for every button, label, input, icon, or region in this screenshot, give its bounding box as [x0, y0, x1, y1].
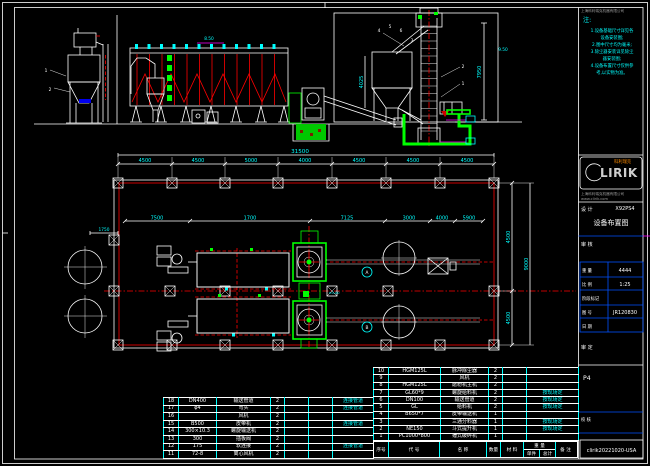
bom-cell [503, 389, 527, 396]
bom-cell: 2 [489, 375, 503, 382]
drawno-label: 图 号 [582, 310, 592, 316]
notes-block: 1.设备基础尺寸详见各 设备安装图; 2.图中尺寸均为毫米; 3.除尘器安装详见… [591, 27, 634, 76]
hopper-height-dim: 4025 [359, 76, 365, 89]
bom-header-weight: 重 量 [524, 442, 555, 450]
bom-cell [527, 411, 579, 418]
bom-cell: GL [389, 404, 441, 411]
bom-row: 17φ4弯头2连接管道 [164, 405, 374, 413]
bom-cell: 螺旋输送机 [217, 428, 271, 436]
inner-dim-5: 4000 [436, 216, 449, 222]
callout-3: 3 [411, 38, 414, 44]
bom-cell [527, 433, 579, 440]
bay-dim-7: 4500 [461, 158, 474, 164]
bom-header-name: 名 称 [440, 442, 487, 457]
logo-brand-cn: 科利瑞克 [614, 158, 632, 165]
bom-cell [333, 451, 374, 459]
bom-table-left: 18DN400输送管道2连接管道17φ4弯头2连接管道16风机215B500皮带… [163, 397, 374, 459]
bom-cell: 2 [271, 398, 285, 406]
logo-website: www.clirik.com [581, 197, 608, 201]
feed-hopper [372, 26, 428, 124]
bom-cell: 4 [374, 411, 389, 418]
bom-cell: 给料机 [441, 404, 489, 411]
bom-cell: 按现场定 [527, 404, 579, 411]
bom-cell [333, 435, 374, 443]
right-dims: 4500 4500 9000 [498, 181, 534, 347]
bom-cell: 锤式破碎机 [441, 433, 489, 440]
bom-cell [503, 397, 527, 404]
bom-cell: 2 [374, 426, 389, 433]
bom-row: 1PC1000*800锤式破碎机1 [374, 433, 579, 440]
check-label: 审 核 [581, 241, 593, 248]
bom-header-remark: 备 注 [556, 442, 575, 457]
bom-cell [503, 426, 527, 433]
bom-cell [309, 451, 333, 459]
bom-cell [285, 413, 309, 421]
bay-dim-2: 4500 [192, 158, 205, 164]
bom-cell: 300×10.3 [179, 428, 217, 436]
bom-cell: 2 [271, 428, 285, 436]
stage-label: 阶段标记 [582, 295, 600, 302]
bom-cell: 风机 [441, 375, 489, 382]
bom-row: 6DN100输送管道2按现场定 [374, 397, 579, 404]
bom-cell [503, 433, 527, 440]
bubble-b: B [366, 325, 369, 331]
mill-plan-1 [293, 231, 326, 281]
bom-row: 2NE150斗式提升机1按现场定 [374, 426, 579, 433]
scale-value: 1:25 [619, 282, 630, 288]
bom-cell [309, 428, 333, 436]
green-pipe-marks [167, 55, 172, 101]
bom-header-no: 序号 [374, 442, 389, 457]
bom-row: 14300×10.3螺旋输送机2 [164, 428, 374, 436]
bom-cell: 9 [374, 375, 389, 382]
bom-cell: 1 [489, 433, 503, 440]
proof-label: 校 核 [581, 416, 592, 423]
bom-cell: B500 [179, 420, 217, 428]
bom-cell: 风机 [217, 413, 271, 421]
bom-cell [285, 428, 309, 436]
baghouse-elevation [130, 44, 290, 123]
bom-cell: 175 [179, 443, 217, 451]
bom-cell: 11 [164, 451, 179, 459]
weight-label: 重 量 [582, 267, 593, 274]
bom-row: 18DN400输送管道2连接管道 [164, 398, 374, 406]
bom-cell [389, 419, 441, 426]
bom-cell: 13 [164, 435, 179, 443]
note-line: 3.除尘器安装详见除尘 [591, 48, 634, 55]
footer-drawing-code: clirik20221020-USA [587, 448, 637, 454]
bom-cell [503, 382, 527, 389]
bom-cell [179, 413, 217, 421]
bom-cell: 2 [271, 451, 285, 459]
bom-cell: PC1000*800 [389, 433, 441, 440]
bom-cell [285, 443, 309, 451]
elevator-height-dim: 7950 [477, 66, 483, 79]
mill-elevation [289, 88, 329, 141]
logo-company: 上海科利瑞克机器有限公司 [581, 191, 625, 196]
callout-1: 1 [462, 81, 465, 87]
bom-cell: 1 [489, 411, 503, 418]
elevator-plan [428, 258, 456, 274]
approve-label: 审 定 [581, 344, 593, 351]
bom-cell: 磨粉机主机 [441, 382, 489, 389]
bom-cell [333, 428, 374, 436]
bom-cell [527, 375, 579, 382]
bom-cell [309, 413, 333, 421]
bom-cell: 连接管道 [333, 443, 374, 451]
level-label-left: 8.50 [204, 36, 214, 42]
bom-header-material: 材 料 [501, 442, 524, 457]
bom-cell: 连接管道 [333, 405, 374, 413]
callout-1-left: 1 [45, 68, 48, 74]
callout-6: 6 [400, 28, 403, 34]
bom-cell [285, 435, 309, 443]
bom-cell: 输送管道 [217, 398, 271, 406]
bom-row: 3三通分料器1按现场定 [374, 419, 579, 426]
cyclone-collector: 1 2 [45, 28, 108, 123]
bom-cell: 2 [271, 435, 285, 443]
bom-cell: 1 [374, 433, 389, 440]
elevation-view: 1 2 [34, 8, 522, 146]
bom-cell [309, 405, 333, 413]
bay-dim-3: 5000 [245, 158, 258, 164]
bom-cell: HGM125L [389, 368, 441, 375]
bom-cell [285, 398, 309, 406]
bom-cell: 2 [489, 397, 503, 404]
callout-5: 5 [389, 24, 392, 30]
titleblock-company-top: 上海科利瑞克机器有限公司 [581, 8, 625, 13]
bom-header-total-weight: 总计 [540, 450, 555, 457]
bom-cell [503, 375, 527, 382]
bom-cell: 连接管道 [333, 398, 374, 406]
bom-header-unit-weight: 单件 [524, 450, 540, 457]
bom-cell: 弯头 [217, 405, 271, 413]
bom-row: 13300插板阀2 [164, 435, 374, 443]
bom-header-row: 序号 代 号 名 称 数量 材 料 重 量 单件 总计 备 注 [373, 441, 578, 458]
bom-cell: 离心风机 [217, 451, 271, 459]
title-block: 上海科利瑞克机器有限公司 注: 1.设备基础尺寸详见各 设备安装图; 2.图中尺… [579, 8, 650, 458]
bom-cell: 7 [374, 389, 389, 396]
inner-dim-2: 1700 [244, 216, 257, 222]
bom-cell: 2 [489, 368, 503, 375]
bom-cell: 2 [271, 405, 285, 413]
bom-cell: 螺旋给料机 [441, 389, 489, 396]
bom-cell: 三通分料器 [441, 419, 489, 426]
bom-cell: 15 [164, 420, 179, 428]
bom-cell [389, 375, 441, 382]
bom-cell [309, 398, 333, 406]
bom-cell: 输送管道 [441, 397, 489, 404]
bom-cell: 按现场定 [527, 397, 579, 404]
bom-cell: 脉冲除尘器 [441, 368, 489, 375]
level-label-right: 9.50 [498, 47, 508, 53]
note-line: 4.设备布置尺寸仅供参 [591, 62, 634, 69]
outdoor-silos: 1750 [64, 227, 118, 338]
scale-label: 比 例 [582, 281, 592, 288]
drawno-value: JR120830 [612, 310, 637, 316]
mill-plan-2 [293, 301, 326, 348]
bom-cell [527, 368, 579, 375]
project-code: X92PS4 [615, 206, 634, 212]
bom-cell: 插板阀 [217, 435, 271, 443]
drawing-sheet: 1 2 [0, 0, 650, 466]
inner-dim-3: 7125 [341, 216, 354, 222]
bom-cell [285, 451, 309, 459]
logo-brand: LIRIK [600, 166, 638, 180]
bom-cell: 皮带机 [217, 420, 271, 428]
bom-cell: NE150 [389, 426, 441, 433]
bom-cell: 按现场定 [527, 389, 579, 396]
bom-row: 8HGM125L磨粉机主机2 [374, 382, 579, 389]
note-line: 1.设备基础尺寸详见各 [591, 27, 634, 34]
bom-cell: 软连接 [217, 443, 271, 451]
bom-cell: 2 [271, 443, 285, 451]
bom-cell: 14 [164, 428, 179, 436]
inner-dim-6: 5900 [463, 216, 476, 222]
bom-cell: HGM125L [389, 382, 441, 389]
bom-cell: 2 [489, 404, 503, 411]
bom-cell: 8 [374, 382, 389, 389]
bom-cell: 按现场定 [527, 419, 579, 426]
bay-dim-6: 4500 [407, 158, 420, 164]
production-line-1 [157, 246, 291, 291]
bom-cell: 连接管道 [333, 420, 374, 428]
section-boundary [334, 13, 498, 122]
bom-row: 7GL60*9螺旋给料机2按现场定 [374, 389, 579, 396]
bom-cell [527, 382, 579, 389]
note-line: 2.图中尺寸均为毫米; [592, 41, 632, 48]
note-line: 考,以实物为准。 [596, 69, 627, 76]
bucket-elevator [416, 8, 462, 146]
right-dim-1: 4500 [506, 231, 512, 244]
bom-cell [503, 404, 527, 411]
sheet-number: P4 [583, 375, 591, 382]
footer-box: clirik20221020-USA [580, 440, 643, 458]
inner-dim-4: 3000 [403, 216, 416, 222]
bom-row: 10HGM125L脉冲除尘器2 [374, 368, 579, 375]
plan-view: 31500 4500 4500 5000 4000 4500 4500 4500 [64, 149, 576, 351]
bom-header-weight-group: 重 量 单件 总计 [524, 442, 556, 457]
bom-cell: 10 [374, 368, 389, 375]
bom-cell [309, 443, 333, 451]
bom-cell: 5 [374, 404, 389, 411]
bom-cell: φ4 [179, 405, 217, 413]
inner-dim-1: 7500 [151, 216, 164, 222]
overall-dim: 31500 [291, 149, 309, 155]
bom-row: 16风机2 [164, 413, 374, 421]
bom-row: 12175软连接2连接管道 [164, 443, 374, 451]
bom-cell: DN400 [179, 398, 217, 406]
bay-dim-4: 4000 [299, 158, 312, 164]
bom-cell: 皮带输送机 [441, 411, 489, 418]
bom-row: 15B500皮带机2连接管道 [164, 420, 374, 428]
bom-cell [309, 420, 333, 428]
callout-2-left: 2 [49, 87, 52, 93]
left-dim: 1750 [99, 227, 110, 233]
bom-header-code: 代 号 [389, 442, 440, 457]
right-dim-3: 9000 [524, 258, 530, 271]
bom-cell: 2 [489, 382, 503, 389]
clirik-logo: LIRIK 科利瑞克 [580, 157, 642, 189]
bom-row: 9风机2 [374, 375, 579, 382]
bom-cell [285, 405, 309, 413]
bom-cell: 18 [164, 398, 179, 406]
callout-2: 2 [462, 64, 465, 70]
bubble-a: A [366, 270, 369, 276]
bay-dim-1: 4500 [139, 158, 152, 164]
bom-cell: 72-8 [179, 451, 217, 459]
callout-4: 4 [378, 28, 381, 34]
bom-cell: 1 [489, 419, 503, 426]
bom-cell: 2 [489, 389, 503, 396]
bom-cell: B650*7 [389, 411, 441, 418]
bom-cell: 斗式提升机 [441, 426, 489, 433]
plan-silos [381, 240, 417, 340]
bom-cell: 6 [374, 397, 389, 404]
bom-header-qty: 数量 [487, 442, 501, 457]
bom-cell: 12 [164, 443, 179, 451]
bom-cell: 17 [164, 405, 179, 413]
bom-cell: 2 [271, 413, 285, 421]
weight-value: 4444 [619, 268, 632, 274]
design-label: 设 计 [581, 206, 593, 213]
plan-center-label: ±0.00 [328, 291, 340, 295]
bom-cell [503, 411, 527, 418]
drawing-title: 设备布置图 [594, 218, 629, 227]
bom-row: 4B650*7皮带输送机1 [374, 411, 579, 418]
bom-cell: DN100 [389, 397, 441, 404]
right-dim-2: 4500 [506, 312, 512, 325]
note-line: 器安装图; [603, 55, 622, 62]
bom-cell [309, 435, 333, 443]
bom-cell: 按现场定 [527, 426, 579, 433]
titleblock-grid: 重 量 4444 比 例 1:25 阶段标记 图 号 JR120830 日 期 [580, 262, 643, 332]
bom-cell [285, 420, 309, 428]
notes-heading: 注: [583, 16, 591, 24]
bom-cell: 1 [489, 426, 503, 433]
bom-cell: 3 [374, 419, 389, 426]
bom-cell: 300 [179, 435, 217, 443]
bom-row: 1172-8离心风机2 [164, 451, 374, 459]
bay-dim-5: 4500 [353, 158, 366, 164]
note-line: 设备安装图; [601, 34, 624, 41]
bom-table-right: 10HGM125L脉冲除尘器29风机28HGM125L磨粉机主机27GL60*9… [373, 367, 579, 441]
bom-cell [503, 419, 527, 426]
bom-cell [333, 413, 374, 421]
bom-cell: 16 [164, 413, 179, 421]
section-bubbles: A B [362, 267, 372, 332]
date-label: 日 期 [582, 324, 592, 330]
bom-cell: GL60*9 [389, 389, 441, 396]
bom-cell [503, 368, 527, 375]
bom-cell: 2 [271, 420, 285, 428]
bom-row: 5GL给料机2按现场定 [374, 404, 579, 411]
